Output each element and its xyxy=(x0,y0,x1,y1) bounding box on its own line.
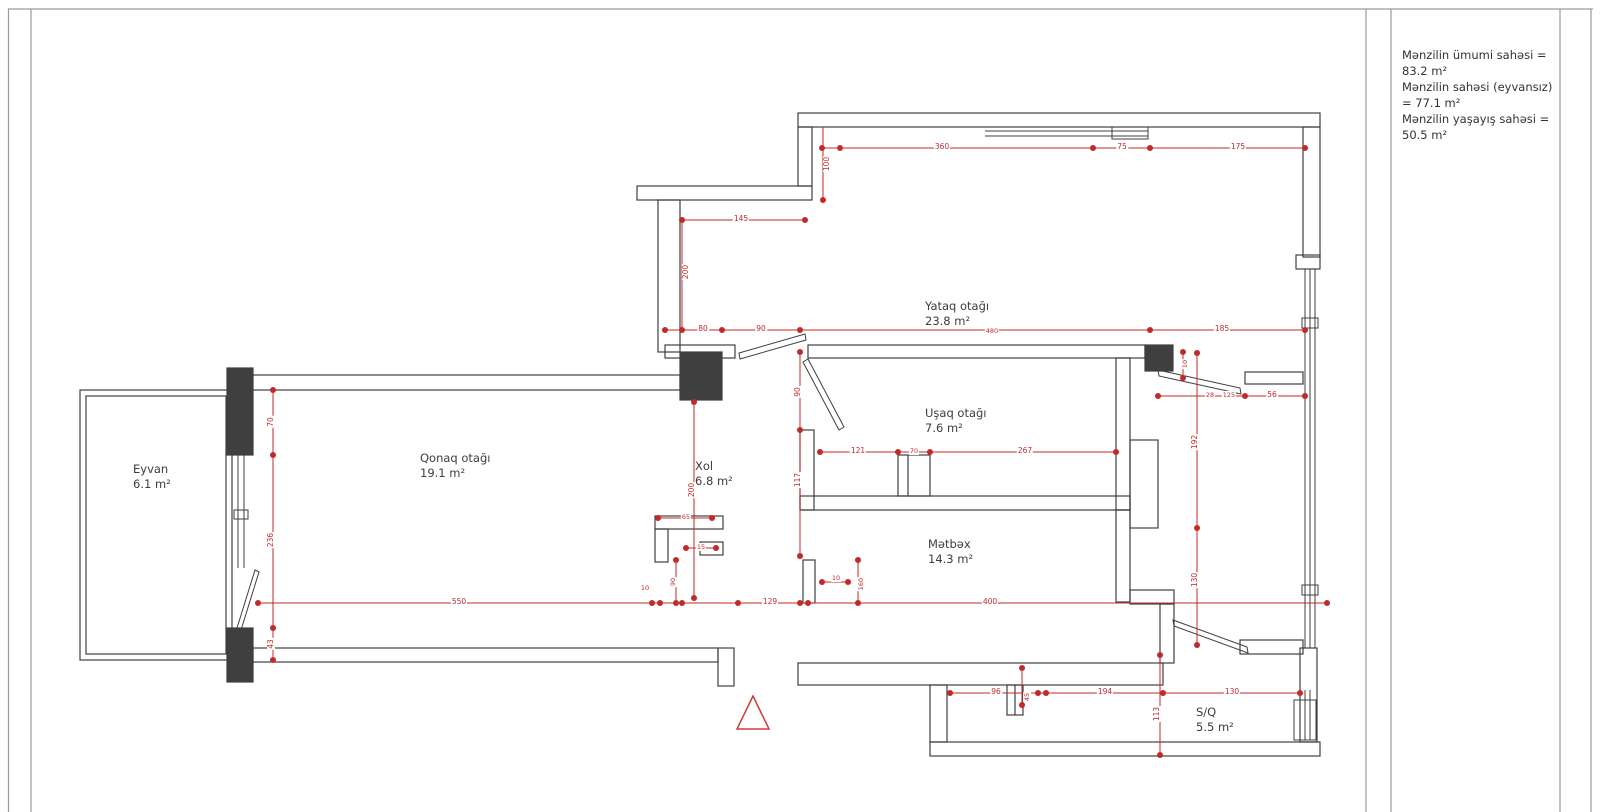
dimension-label: 45 xyxy=(1023,692,1031,702)
dimension-label: 70 xyxy=(267,416,275,428)
dimension-label: 65 xyxy=(681,513,691,521)
dimension-label: 194 xyxy=(1097,688,1113,696)
dimension-label: 130 xyxy=(1224,688,1240,696)
dimension-label: 113 xyxy=(1153,706,1161,722)
dimension-label: 75 xyxy=(1116,143,1128,151)
room-label-usaq-otagi: Uşaq otağı7.6 m² xyxy=(925,406,987,436)
dimension-label: 175 xyxy=(1230,143,1246,151)
room-label-eyvan: Eyvan6.1 m² xyxy=(133,462,171,492)
dimension-label: 160 xyxy=(857,577,865,591)
dimension-label: 117 xyxy=(794,472,802,488)
dimension-label: 90 xyxy=(669,577,677,587)
dimension-label: 10 xyxy=(640,584,650,592)
dimension-label: 80 xyxy=(697,325,709,333)
dimension-label: 10 xyxy=(831,574,841,582)
dimension-label: 480 xyxy=(985,327,999,335)
dimension-label: 267 xyxy=(1017,447,1033,455)
dimension-label: 550 xyxy=(451,598,467,606)
north-triangle-icon xyxy=(737,696,769,729)
door-swing-icon xyxy=(803,359,844,430)
closet xyxy=(898,455,930,496)
area-summary-panel: Mənzilin ümumi sahəsi = 83.2 m² Mənzilin… xyxy=(1402,48,1554,144)
dimension-label: 90 xyxy=(755,325,767,333)
dimension-lines-layer xyxy=(258,127,1327,755)
dimension-label: 185 xyxy=(1214,325,1230,333)
dimension-label: 192 xyxy=(1191,434,1199,450)
floorplan-drawing xyxy=(0,0,1600,812)
dimension-label: 100 xyxy=(823,156,831,172)
dimension-label: 236 xyxy=(267,532,275,548)
dimension-label: 360 xyxy=(934,143,950,151)
dimension-label: 400 xyxy=(982,598,998,606)
room-label-qonaq-otagi: Qonaq otağı19.1 m² xyxy=(420,451,490,481)
dimension-label: 125 xyxy=(1222,391,1236,399)
room-label-s-q: S/Q5.5 m² xyxy=(1196,705,1234,735)
dimension-label: 28 xyxy=(1205,391,1215,399)
dimension-label: 129 xyxy=(762,598,778,606)
dimension-label: 43 xyxy=(267,638,275,650)
doors-layer xyxy=(237,334,1248,653)
shaft xyxy=(1130,440,1158,528)
dimension-label: 96 xyxy=(990,688,1002,696)
dimension-label: 200 xyxy=(688,482,696,498)
door-swing-icon xyxy=(237,570,259,630)
dimension-label: 15 xyxy=(696,543,706,551)
dimension-label: 130 xyxy=(1191,572,1199,588)
room-label-xol: Xol6.8 m² xyxy=(695,459,733,489)
dimension-label: 145 xyxy=(733,215,749,223)
summary-line-area-without-balcony: Mənzilin sahəsi (eyvansız) = 77.1 m² xyxy=(1402,80,1554,111)
door-swing-icon xyxy=(739,334,806,359)
room-label-metbex: Mətbəx14.3 m² xyxy=(928,537,973,567)
dimension-label: 56 xyxy=(1266,391,1278,399)
dimension-label: 200 xyxy=(682,264,690,280)
dimension-label: 70 xyxy=(909,447,919,455)
room-label-yataq-otagi: Yataq otağı23.8 m² xyxy=(925,299,989,329)
dimension-dots-layer xyxy=(255,145,1330,758)
floorplan-sheet: Eyvan6.1 m²Qonaq otağı19.1 m²Xol6.8 m²Ya… xyxy=(0,0,1600,812)
balcony-railing xyxy=(80,390,232,660)
walls-layer xyxy=(80,113,1320,756)
dimension-label: 90 xyxy=(794,386,802,398)
dimension-label: 121 xyxy=(850,447,866,455)
summary-line-living-area: Mənzilin yaşayış sahəsi = 50.5 m² xyxy=(1402,112,1554,143)
door-swing-icon xyxy=(1173,620,1248,653)
dimension-label: 10 xyxy=(1181,359,1189,369)
summary-line-total-area: Mənzilin ümumi sahəsi = 83.2 m² xyxy=(1402,48,1554,79)
